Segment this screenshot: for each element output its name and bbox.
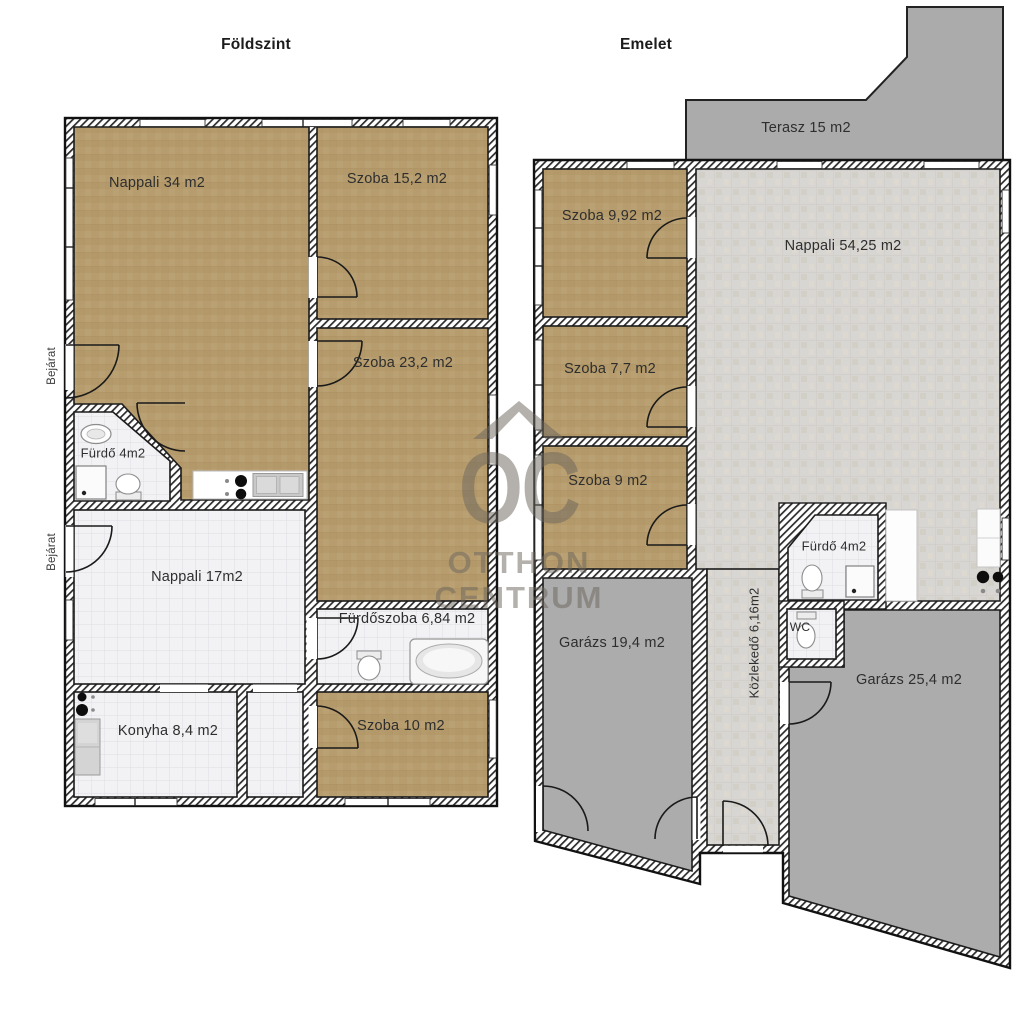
furdo-upper-block bbox=[779, 503, 886, 609]
washing-machine-icon bbox=[846, 566, 874, 597]
room-label-terasz: Terasz 15 m2 bbox=[761, 120, 850, 136]
floorplan-svg bbox=[0, 0, 1034, 1024]
counter-upper bbox=[886, 510, 917, 601]
washing-machine-icon bbox=[76, 466, 106, 499]
room-label-szoba-9: Szoba 9 m2 bbox=[568, 473, 647, 489]
entrance-label-top: Bejárat bbox=[46, 347, 58, 385]
room-label-konyha: Konyha 8,4 m2 bbox=[118, 723, 218, 739]
room-label-furdoszoba: Fürdőszoba 6,84 m2 bbox=[339, 611, 476, 627]
room-label-garazs-254: Garázs 25,4 m2 bbox=[856, 672, 962, 688]
floorplan-page: Földszint Emelet Nappali 34 m2 Szoba 15,… bbox=[0, 0, 1034, 1024]
ground-floor-plan bbox=[65, 118, 497, 806]
room-szoba-992 bbox=[543, 169, 687, 317]
room-label-kozlekedo: Közlekedő 6,16m2 bbox=[747, 588, 762, 699]
toilet-icon bbox=[116, 474, 141, 500]
room-garazs-194 bbox=[543, 578, 692, 871]
room-label-wc: WC bbox=[790, 620, 810, 634]
room-label-szoba-10: Szoba 10 m2 bbox=[357, 718, 445, 734]
room-kozlekedo bbox=[707, 569, 779, 845]
room-nappali-17 bbox=[74, 510, 305, 684]
room-label-szoba-992: Szoba 9,92 m2 bbox=[562, 208, 662, 224]
room-label-szoba-232: Szoba 23,2 m2 bbox=[353, 355, 453, 371]
kitchen-counter-ground bbox=[193, 471, 307, 499]
room-szoba-10 bbox=[317, 692, 488, 797]
terrace-area bbox=[686, 7, 1003, 160]
ground-floor-title: Földszint bbox=[221, 36, 291, 54]
room-hall-ground bbox=[247, 692, 303, 797]
room-szoba-9 bbox=[543, 446, 687, 569]
room-label-nappali-5425: Nappali 54,25 m2 bbox=[785, 238, 902, 254]
entrance-label-bottom: Bejárat bbox=[46, 533, 58, 571]
room-label-szoba-77: Szoba 7,7 m2 bbox=[564, 361, 656, 377]
toilet-icon bbox=[357, 651, 381, 680]
room-szoba-152 bbox=[317, 127, 488, 319]
wc-block bbox=[779, 601, 844, 667]
toilet-icon bbox=[802, 565, 823, 598]
room-label-garazs-194: Garázs 19,4 m2 bbox=[559, 635, 665, 651]
room-label-nappali-17: Nappali 17m2 bbox=[151, 569, 243, 585]
room-szoba-77 bbox=[543, 326, 687, 437]
room-label-furdo-upper: Fürdő 4m2 bbox=[802, 539, 867, 554]
room-label-nappali-34: Nappali 34 m2 bbox=[109, 175, 205, 191]
room-label-furdo-ground: Fürdő 4m2 bbox=[81, 446, 146, 461]
upper-floor-title: Emelet bbox=[620, 36, 672, 54]
room-label-szoba-152: Szoba 15,2 m2 bbox=[347, 171, 447, 187]
